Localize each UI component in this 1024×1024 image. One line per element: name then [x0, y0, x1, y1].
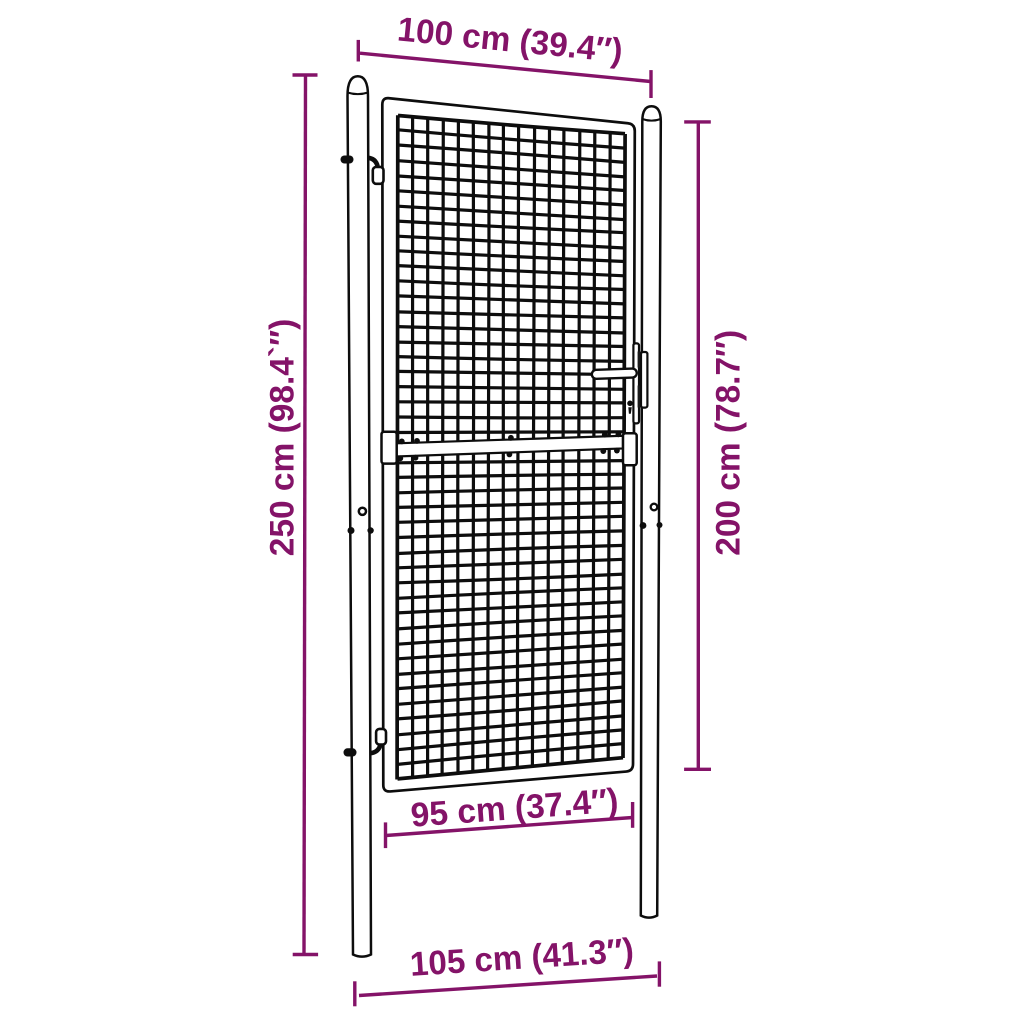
- svg-text:250 cm (98.4`″): 250 cm (98.4`″): [263, 319, 301, 557]
- svg-text:200 cm (78.7″): 200 cm (78.7″): [710, 330, 748, 556]
